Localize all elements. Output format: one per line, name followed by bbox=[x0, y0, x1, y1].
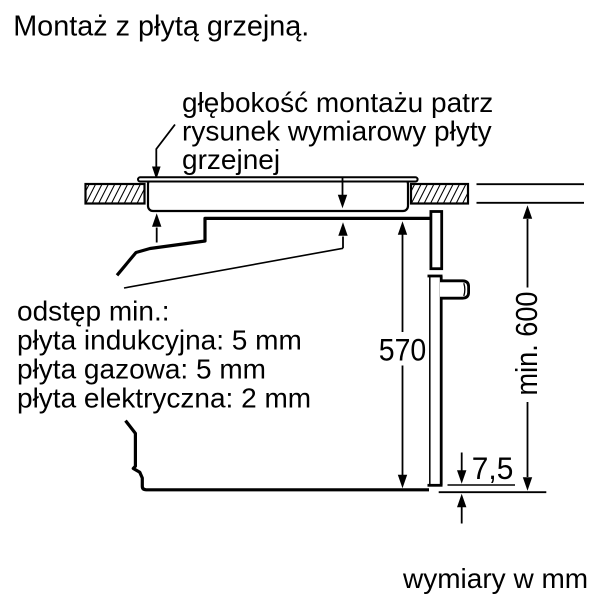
svg-text:7,5: 7,5 bbox=[472, 450, 514, 486]
svg-text:570: 570 bbox=[379, 331, 427, 367]
svg-text:odstęp min.:: odstęp min.: bbox=[17, 296, 170, 327]
svg-text:min. 600: min. 600 bbox=[509, 292, 544, 396]
svg-text:płyta indukcyjna: 5 mm: płyta indukcyjna: 5 mm bbox=[17, 325, 302, 356]
svg-text:płyta elektryczna: 2 mm: płyta elektryczna: 2 mm bbox=[17, 383, 311, 414]
svg-text:Montaż z płytą grzejną.: Montaż z płytą grzejną. bbox=[13, 11, 309, 43]
svg-text:rysunek wymiarowy płyty: rysunek wymiarowy płyty bbox=[182, 116, 492, 147]
svg-text:płyta gazowa: 5 mm: płyta gazowa: 5 mm bbox=[17, 354, 266, 385]
svg-text:wymiary w mm: wymiary w mm bbox=[402, 563, 588, 594]
svg-text:głębokość montażu patrz: głębokość montażu patrz bbox=[182, 87, 493, 118]
svg-text:grzejnej: grzejnej bbox=[182, 144, 280, 175]
